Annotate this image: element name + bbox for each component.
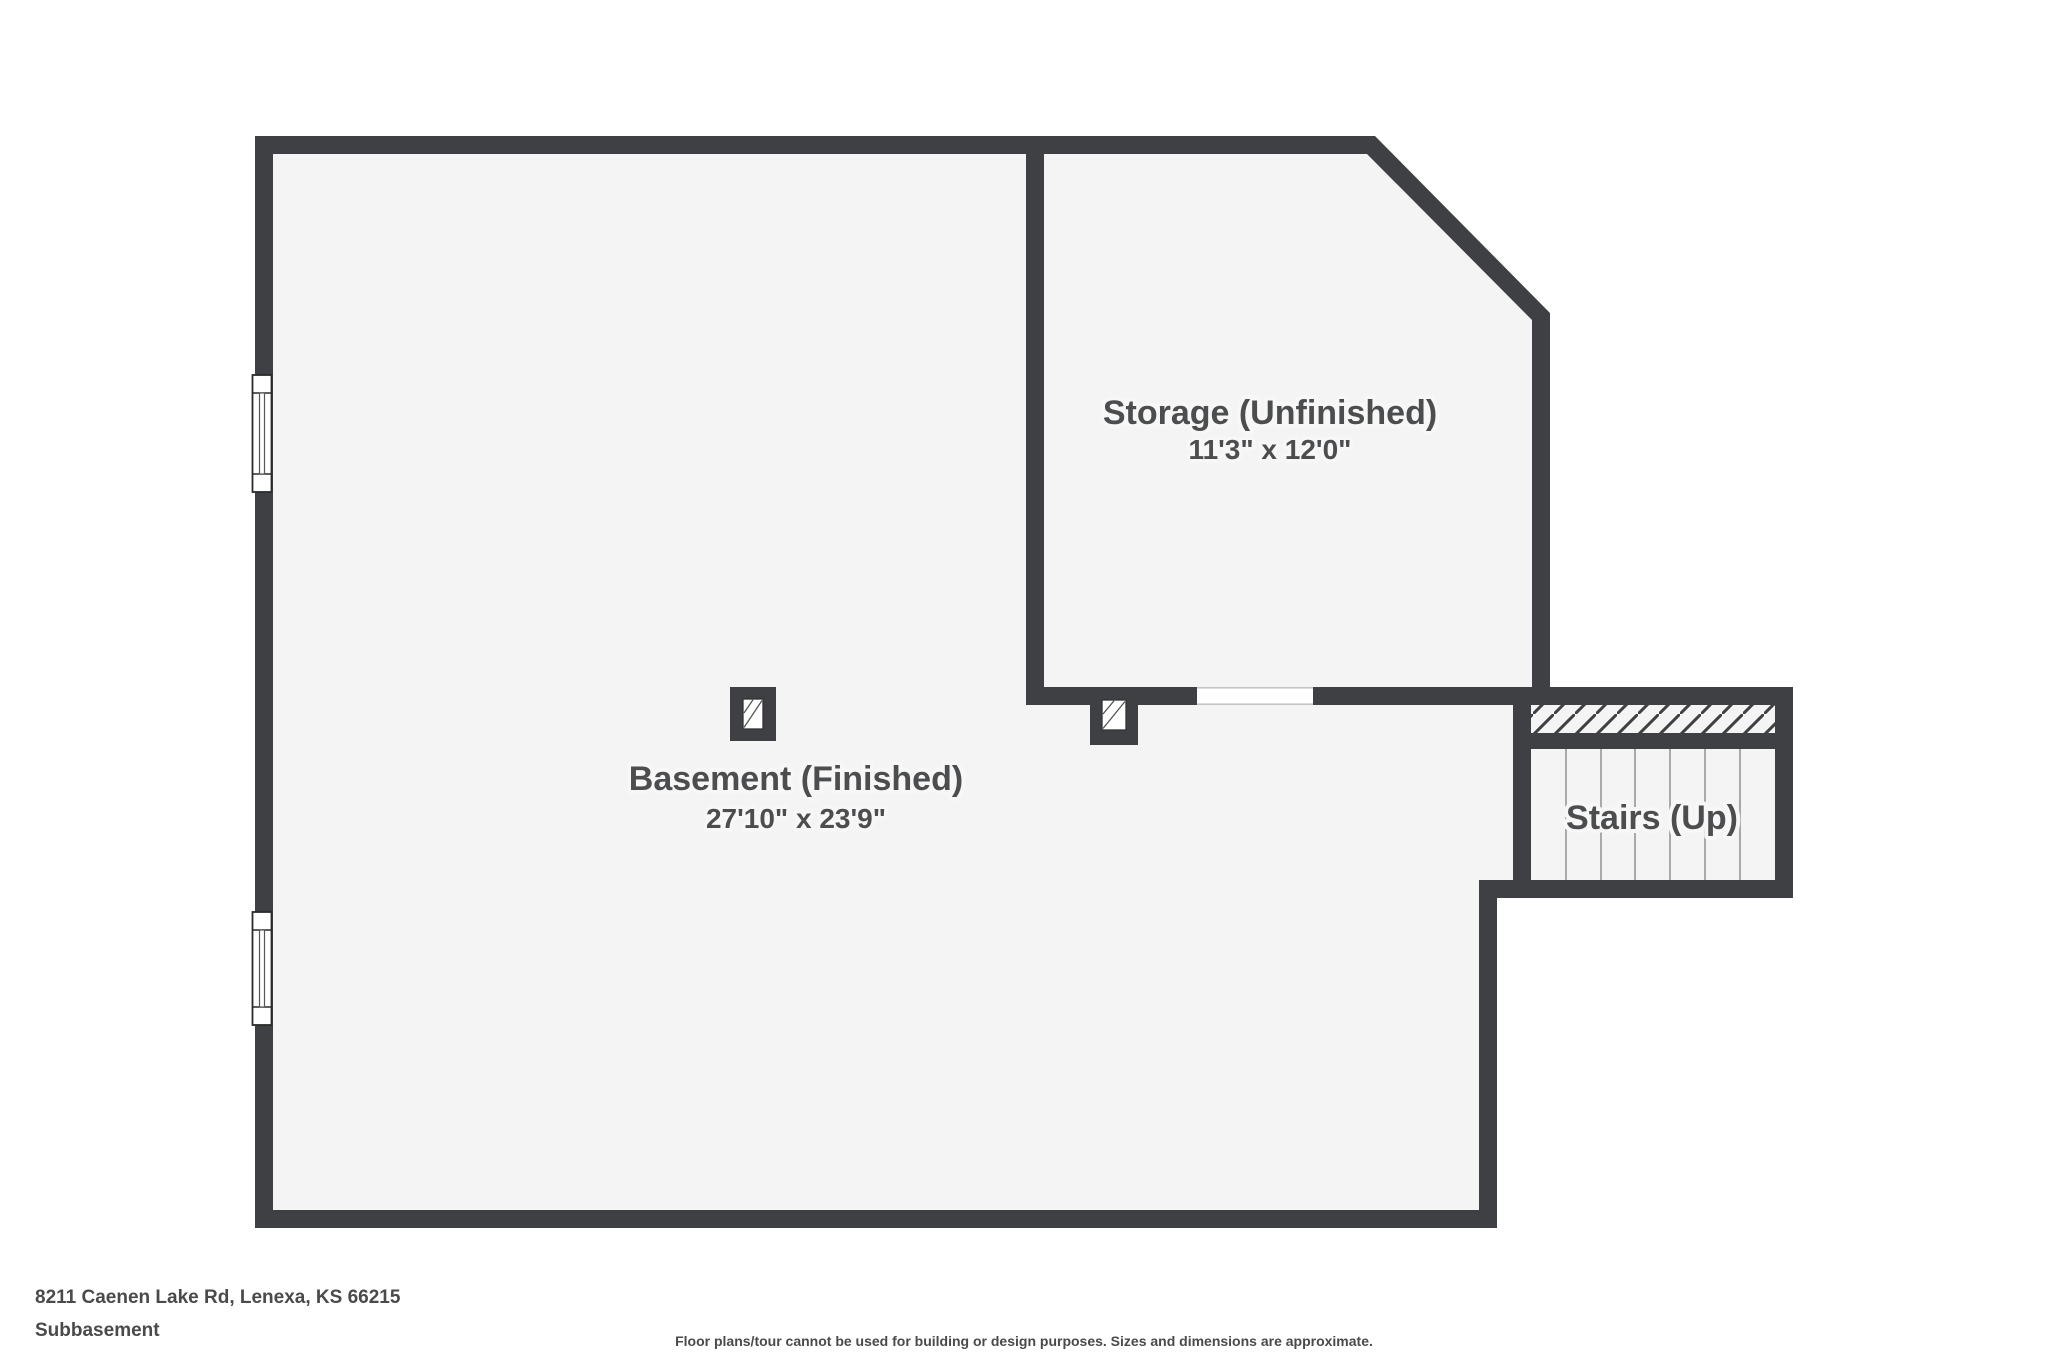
- storage-room-dimensions: 11'3" x 12'0": [1189, 434, 1352, 465]
- storage-room-label: Storage (Unfinished): [1103, 394, 1437, 432]
- disclaimer-text: Floor plans/tour cannot be used for buil…: [0, 1333, 2048, 1349]
- post-icon: [1090, 692, 1138, 745]
- address-text: 8211 Caenen Lake Rd, Lenexa, KS 66215: [35, 1287, 400, 1309]
- floorplan-page: Basement (Finished) 27'10" x 23'9" Stora…: [0, 0, 2048, 1365]
- wall-stairs-inner: [1531, 733, 1775, 749]
- window-icon: [253, 912, 272, 1025]
- basement-room-dimensions: 27'10" x 23'9": [706, 803, 886, 834]
- post-icon: [730, 687, 776, 741]
- wall-basement-storage-divider: [1026, 154, 1044, 705]
- stairs-label: Stairs (Up): [1566, 799, 1738, 837]
- wall-storage-bottom-right: [1313, 687, 1775, 705]
- floor-plan: Basement (Finished) 27'10" x 23'9" Stora…: [0, 0, 2048, 1365]
- window-icon: [253, 375, 272, 492]
- wall-stairs-left: [1513, 705, 1531, 898]
- door-opening: [1197, 687, 1313, 705]
- basement-room-label: Basement (Finished): [629, 760, 963, 798]
- stairs-hatch-band: [1531, 705, 1775, 733]
